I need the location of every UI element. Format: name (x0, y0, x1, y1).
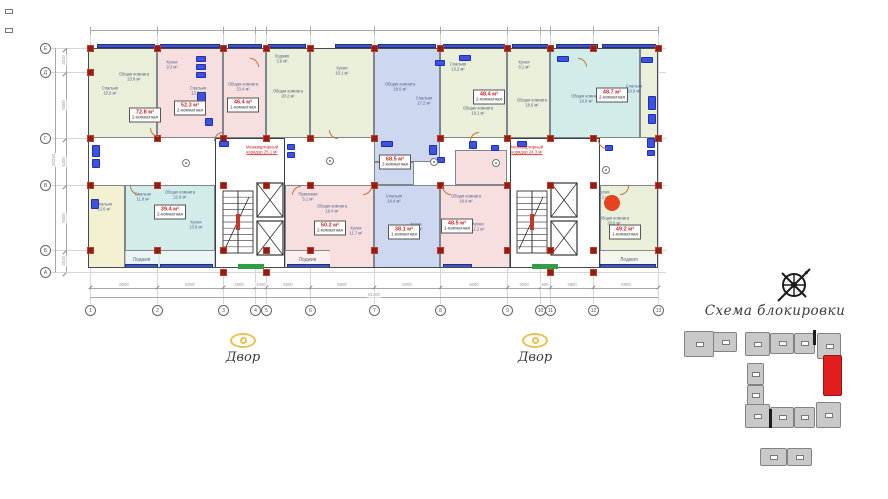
room-label: Общая комната18.4 м² (448, 195, 484, 204)
plumbing-fixture-icon (196, 64, 206, 70)
corridor-label: Межквартирныйкоридор 24.3 м² (497, 145, 557, 155)
dimension-tick (90, 27, 91, 34)
room-label: Общая комната22.8 м² (162, 191, 198, 200)
plumbing-fixture-icon (647, 138, 655, 148)
structural-column (307, 135, 314, 142)
room-area: 8.1 м² (506, 66, 542, 71)
apartment-type: 1-комнатная (612, 233, 638, 238)
balcony-glazing (602, 44, 656, 48)
corridor-area: коридор 25.1 м² (232, 150, 292, 155)
structural-column (547, 247, 554, 254)
room-area: 20.2 м² (270, 95, 306, 100)
structural-column (371, 135, 378, 142)
grid-axis-bubble: 6 (305, 305, 316, 316)
site-building-block[interactable] (684, 331, 714, 357)
structural-column (263, 135, 270, 142)
room-area: 23.4 м² (225, 88, 261, 93)
apartment-area-badge[interactable]: 48.4 м²2-комнатная (473, 90, 505, 105)
structural-column (220, 45, 227, 52)
room-area: 11.8 м² (125, 198, 161, 203)
structural-column (655, 247, 662, 254)
page: ЛоджияЛоджияЛоджияСпальня15.6 м²Общая ко… (0, 0, 888, 499)
dimension-value: 6000 (61, 99, 66, 110)
structural-column (220, 182, 227, 189)
dimension-value: 2900 (233, 282, 244, 287)
room-label: Общая комната19.4 м² (314, 205, 350, 214)
room-area: 3.6 м² (264, 60, 300, 65)
room-label: Кухня10.1 м² (324, 67, 360, 76)
site-building-block[interactable] (745, 404, 770, 428)
block-divider-tick (769, 409, 772, 428)
building-window-icon (801, 415, 809, 420)
grid-axis-bubble: 12 (588, 305, 599, 316)
structural-column (220, 247, 227, 254)
plumbing-fixture-icon (647, 150, 655, 156)
room-area: 13.2 м² (440, 68, 476, 73)
room-label: Лоджия3.6 м² (264, 55, 300, 64)
room-area: 18.4 м² (448, 200, 484, 205)
dimension-value: 6000 (184, 282, 195, 287)
structural-column (547, 269, 554, 276)
dimension-value: 6000 (61, 212, 66, 223)
balcony-glazing (443, 264, 472, 268)
dimension-tick (550, 27, 551, 34)
dimension-value: 6000 (468, 282, 479, 287)
block-divider-tick (813, 330, 816, 345)
building-window-icon (779, 341, 787, 346)
entrance-pin-icon (326, 157, 334, 165)
site-building-block[interactable] (794, 333, 815, 354)
room-area: 13.8 м² (178, 226, 214, 231)
plumbing-fixture-icon (196, 56, 206, 62)
room-area: 10.1 м² (324, 72, 360, 77)
entrance-mark (532, 264, 558, 269)
corridor-label: Межквартирныйкоридор 25.1 м² (232, 145, 292, 155)
site-building-block[interactable] (747, 385, 764, 406)
grid-axis-bubble: Д (40, 67, 51, 78)
structural-column (547, 135, 554, 142)
apartment-area-badge[interactable]: 52.3 м²2-комнатная (174, 101, 206, 116)
plumbing-fixture-icon (92, 145, 100, 157)
balcony-glazing (335, 44, 372, 48)
grid-axis-bubble: 3 (218, 305, 229, 316)
plumbing-fixture-icon (437, 157, 445, 163)
dimension-tick (507, 27, 508, 34)
dimension-value: 4000 (282, 282, 293, 287)
plumbing-fixture-icon (648, 96, 656, 110)
dimension-tick (440, 27, 441, 34)
stairs-elevator-icon (216, 139, 286, 269)
structural-column (590, 247, 597, 254)
apartment-area-badge[interactable]: 38.1 м²1-комнатная (388, 225, 420, 240)
grid-axis-bubble: 5 (261, 305, 272, 316)
dimension-tick (62, 272, 66, 276)
grid-axis-bubble: 1 (85, 305, 96, 316)
courtyard-view-icon[interactable] (230, 333, 256, 348)
room-area: 18.6 м² (382, 88, 418, 93)
apartment-area-badge[interactable]: 68.5 м²2-комнатная (379, 155, 411, 170)
apartment-type: 2-комнатная (599, 96, 625, 101)
courtyard-view-icon[interactable] (522, 333, 548, 348)
room-label: Кухня9.3 м² (154, 61, 190, 70)
structural-column (87, 69, 94, 76)
apartment-area-badge[interactable]: 46.4 м²1-комнатная (227, 98, 259, 113)
structural-column (87, 135, 94, 142)
room-label: Прихожая5.1 м² (290, 193, 326, 202)
building-window-icon (801, 341, 809, 346)
plumbing-fixture-icon (459, 55, 471, 61)
corridor-area: коридор 24.3 м² (497, 150, 557, 155)
apartment-type: 2-комнатная (382, 163, 408, 168)
dimension-value: 6000 (401, 282, 412, 287)
structural-column (504, 247, 511, 254)
apartment-type: 2-комнатная (157, 213, 183, 218)
dimension-tick (310, 27, 311, 34)
site-building-block[interactable] (770, 407, 794, 428)
structural-column (590, 135, 597, 142)
plumbing-fixture-icon (641, 57, 653, 63)
grid-axis-bubble: 4 (250, 305, 261, 316)
structural-column (307, 182, 314, 189)
total-dimension-value: 20220 (51, 153, 56, 167)
room-label: Общая комната20.2 м² (270, 90, 306, 99)
room-label: Спальня13.6 м² (86, 203, 122, 212)
entrance-pin-icon (430, 158, 438, 166)
structural-column (263, 182, 270, 189)
dimension-value: 3900 (566, 282, 577, 287)
structural-column (437, 45, 444, 52)
plumbing-fixture-icon (92, 159, 100, 168)
site-building-block[interactable] (745, 332, 770, 356)
plumbing-fixture-icon (381, 141, 393, 147)
balcony-glazing (160, 264, 213, 268)
building-window-icon (826, 344, 834, 349)
structural-column (87, 45, 94, 52)
dimension-tick (223, 27, 224, 34)
apartment-area-badge[interactable]: 39.4 м²2-комнатная (154, 205, 186, 220)
room-label: Спальня17.2 м² (406, 97, 442, 106)
grid-line-vertical (658, 26, 659, 304)
plumbing-fixture-icon (469, 141, 477, 149)
structural-column (547, 182, 554, 189)
dimension-tick (658, 27, 659, 34)
dimension-tick (157, 27, 158, 34)
dimension-value: 5900 (620, 282, 631, 287)
room-area: 19.1 м² (460, 112, 496, 117)
building-window-icon (770, 455, 778, 460)
structural-column (263, 269, 270, 276)
plumbing-fixture-icon (429, 145, 437, 155)
apartment-type: 2-комнатная (132, 116, 158, 121)
room-label: Спальня13.2 м² (180, 87, 216, 96)
apartment-area-badge[interactable]: 48.7 м²2-комнатная (596, 88, 628, 103)
room-area: 16.4 м² (376, 200, 412, 205)
entrance-mark (238, 264, 264, 269)
site-building-block[interactable] (770, 333, 794, 354)
entrance-pin-icon (602, 166, 610, 174)
structural-column (504, 182, 511, 189)
structural-column (154, 45, 161, 52)
room-label: Кухня13.8 м² (178, 221, 214, 230)
room-label: Общая комната18.6 м² (382, 83, 418, 92)
balcony-glazing (600, 264, 656, 268)
dimension-tick (266, 27, 267, 34)
balcony-glazing (287, 264, 330, 268)
structural-column (590, 45, 597, 52)
structural-column (371, 247, 378, 254)
stairs-elevator-icon (511, 139, 601, 269)
site-building-block[interactable] (816, 402, 841, 428)
apartment-type: 2-комнатная (317, 229, 343, 234)
grid-axis-bubble: Е (40, 43, 51, 54)
apartment-unit-extension[interactable] (455, 150, 507, 185)
apartment-type: 1-комнатная (391, 233, 417, 238)
room-area: 9.3 м² (154, 66, 190, 71)
grid-axis-bubble: Б (40, 245, 51, 256)
structural-column (437, 247, 444, 254)
room-label: Общая комната19.1 м² (460, 107, 496, 116)
courtyard-label: Двор (226, 350, 260, 365)
balcony-glazing (378, 44, 436, 48)
building-window-icon (754, 342, 762, 347)
courtyard-label: Двор (518, 350, 552, 365)
stair-elevator-core (510, 138, 600, 268)
plumbing-fixture-icon (196, 72, 206, 78)
room-label: Спальня15.6 м² (92, 87, 128, 96)
apartment-area-badge[interactable]: 48.5 м²1-комнатная (441, 219, 473, 234)
balcony-glazing (125, 264, 158, 268)
building-window-icon (752, 393, 760, 398)
room-area: 23.8 м² (116, 78, 152, 83)
grid-axis-bubble: 8 (435, 305, 446, 316)
apartment-type: 2-комнатная (476, 98, 502, 103)
building-window-icon (722, 340, 730, 345)
building-window-icon (752, 372, 760, 377)
apartment-area-badge[interactable]: 50.2 м²2-комнатная (314, 221, 346, 236)
grid-axis-bubble: 7 (369, 305, 380, 316)
apartment-unit[interactable] (223, 48, 266, 138)
balcony-glazing (160, 44, 220, 48)
balcony-glazing (443, 44, 505, 48)
dimension-tick (255, 27, 256, 34)
balcony-glazing (228, 44, 262, 48)
room-area: 18.6 м² (514, 104, 550, 109)
site-building-block[interactable] (794, 407, 815, 428)
grid-axis-bubble: 9 (502, 305, 513, 316)
site-building-block-highlighted[interactable] (823, 355, 842, 396)
building-window-icon (825, 413, 833, 418)
total-dimension-value: 51400 (367, 292, 381, 297)
site-building-block[interactable] (713, 332, 737, 352)
room-label: Общая комната23.4 м² (225, 83, 261, 92)
dimension-value: 4200 (61, 156, 66, 167)
structural-column (220, 269, 227, 276)
dimension-value: 900 (541, 282, 550, 287)
dimension-value: 2010 (61, 255, 66, 266)
structural-column (547, 45, 554, 52)
plumbing-fixture-icon (557, 56, 569, 62)
dimension-tick (593, 27, 594, 34)
dimension-value: 2010 (61, 54, 66, 65)
plumbing-fixture-icon (219, 141, 229, 147)
structural-column (655, 135, 662, 142)
room-label: Спальня16.4 м² (376, 195, 412, 204)
room-area: 19.4 м² (314, 210, 350, 215)
grid-axis-bubble: 2 (152, 305, 163, 316)
structural-column (655, 45, 662, 52)
room-area: 5.1 м² (290, 198, 326, 203)
room-area: 13.6 м² (86, 208, 122, 213)
building-window-icon (5, 9, 13, 14)
entrance-pin-icon (492, 159, 500, 167)
structural-column (154, 182, 161, 189)
selected-unit-marker[interactable] (604, 195, 620, 211)
room-area: 13.2 м² (180, 92, 216, 97)
site-building-block[interactable] (747, 363, 764, 385)
room-area: 17.2 м² (406, 102, 442, 107)
grid-axis-bubble: Г (40, 133, 51, 144)
balcony-glazing (268, 44, 306, 48)
apartment-type: 1-комнатная (444, 227, 470, 232)
grid-axis-bubble: 11 (545, 305, 556, 316)
structural-column (87, 182, 94, 189)
room-label: Общая комната23.8 м² (116, 73, 152, 82)
structural-column (590, 182, 597, 189)
balcony-glazing (97, 44, 155, 48)
structural-column (263, 45, 270, 52)
apartment-type: 1-комнатная (230, 106, 256, 111)
room-area: 15.6 м² (92, 92, 128, 97)
structural-column (371, 45, 378, 52)
building-window-icon (796, 455, 804, 460)
structural-column (655, 182, 662, 189)
room-label: Спальня11.8 м² (125, 193, 161, 202)
apartment-unit[interactable] (310, 48, 374, 138)
site-building-block[interactable] (760, 448, 787, 466)
plumbing-fixture-icon (205, 118, 213, 126)
room-label: Общая комната18.6 м² (514, 99, 550, 108)
dimension-tick (374, 27, 375, 34)
structural-column (504, 135, 511, 142)
site-building-block[interactable] (787, 448, 812, 466)
room-label: Кухня8.1 м² (506, 61, 542, 70)
building-window-icon (696, 342, 704, 347)
apartment-area-badge[interactable]: 72.8 м²2-комнатная (129, 108, 161, 123)
dimension-value: 3000 (518, 282, 529, 287)
grid-axis-bubble: 13 (653, 305, 664, 316)
grid-axis-bubble: В (40, 180, 51, 191)
dimension-value: 6000 (118, 282, 129, 287)
balcony-glazing (512, 44, 548, 48)
plumbing-fixture-icon (648, 114, 656, 124)
structural-column (437, 135, 444, 142)
room-label: Спальня13.2 м² (440, 63, 476, 72)
apartment-unit[interactable] (88, 185, 125, 268)
apartment-type: 2-комнатная (177, 109, 203, 114)
room-area: 22.8 м² (162, 196, 198, 201)
compass-icon (773, 264, 815, 306)
site-scheme-title: Схема блокировки (700, 303, 850, 319)
structural-column (504, 45, 511, 52)
structural-column (154, 247, 161, 254)
structural-column (590, 269, 597, 276)
building-window-icon (779, 415, 787, 420)
apartment-area-badge[interactable]: 49.2 м²1-комнатная (609, 225, 641, 240)
building-window-icon (754, 414, 762, 419)
grid-axis-bubble: А (40, 267, 51, 278)
dimension-value: 1000 (255, 282, 266, 287)
structural-column (307, 45, 314, 52)
grid-line-horizontal (42, 272, 666, 273)
entrance-pin-icon (182, 159, 190, 167)
dimension-tick (540, 27, 541, 34)
structural-column (263, 247, 270, 254)
structural-column (87, 247, 94, 254)
structural-column (307, 247, 314, 254)
building-window-icon (5, 28, 13, 33)
dimension-value: 5800 (336, 282, 347, 287)
